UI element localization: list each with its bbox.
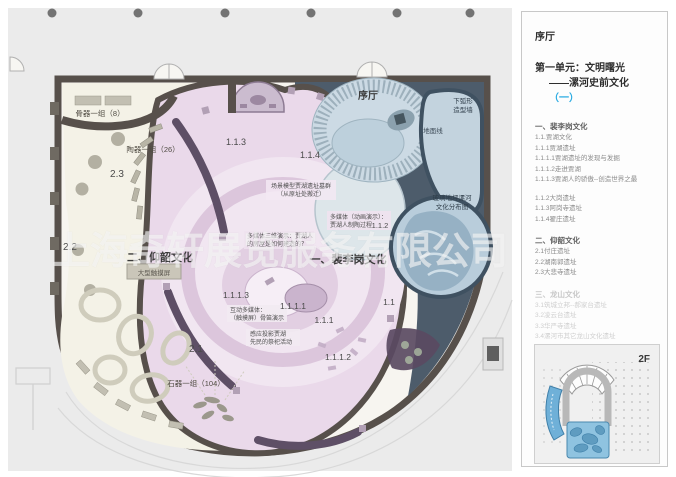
section-item: 3.4漯河市其它龙山文化遗址 xyxy=(535,332,657,343)
panel-unit-suffix: （一） xyxy=(549,93,579,104)
minimap-zone-bottom xyxy=(567,422,609,458)
section-item: 1.1.1.2走进贾湖 xyxy=(535,165,657,176)
interact-line1: 互动多媒体： xyxy=(230,306,266,314)
hall-label: 序厅 xyxy=(358,89,378,102)
legend-panel: 序厅 第一单元：文明曙光 ——漯河史前文化（一） 一、裴李岗文化 1.1.贾湖文… xyxy=(521,11,668,467)
section-item: 2.3大悲寺遗址 xyxy=(535,268,657,279)
zone-num-2-1: 2.1 xyxy=(189,344,203,355)
section-item: 3.1筑城立邦--郝家台遗址 xyxy=(535,301,657,312)
media-3d-line2: 的房屋是如何建造的？ xyxy=(247,240,307,248)
glass-floor-line2: 文化分布图 xyxy=(436,202,469,211)
zone-num-1-1-1: 1.1.1 xyxy=(315,315,334,325)
section-longshan: 三、龙山文化 3.1筑城立邦--郝家台遗址 3.2凌云台遗址 3.3华严寺遗址 … xyxy=(535,288,657,343)
section-heading: 一、裴李岗文化 xyxy=(535,120,657,133)
scene-model-line1: 场景模型贾湖遗址墓群 xyxy=(271,182,331,190)
pottery-group-label: 陶器一组（26） xyxy=(126,144,179,154)
panel-unit-title-line1: 第一单元：文明曙光 xyxy=(535,61,657,76)
projection-line2: 先民的祭祀活动 xyxy=(250,338,292,346)
zone-num-2-3: 2.3 xyxy=(110,169,124,180)
scene-model-line2: （从原址处搬迁） xyxy=(277,190,325,198)
zone-num-1-1-1-3: 1.1.1.3 xyxy=(223,290,249,300)
minimap-floor-label: 2F xyxy=(638,354,650,365)
panel-unit-subtitle: ——漯河史前文化 xyxy=(549,78,629,89)
elevator-block xyxy=(483,338,503,370)
zone-num-1-1-3: 1.1.3 xyxy=(226,137,246,147)
section-item: 1.1.3阿岗寺遗址 xyxy=(535,204,657,215)
section-heading: 二、仰韶文化 xyxy=(535,234,657,247)
floorplan-page: 骨器一组（8） 陶器一组（26） 石器一组（104） 大型触摸屏 二、仰韶文化 … xyxy=(0,0,676,477)
section-yangshao: 二、仰韶文化 2.1付庄遗址 2.2湖南郭遗址 2.3大悲寺遗址 xyxy=(535,234,657,279)
zone-title-peiligang: 一、裴李岗文化 xyxy=(310,252,387,266)
floorplan-drawing: 骨器一组（8） 陶器一组（26） 石器一组（104） 大型触摸屏 二、仰韶文化 … xyxy=(0,0,520,477)
arc-wall-line1: 下弧形 xyxy=(453,96,473,105)
projection-line1: 感应投影贾湖 xyxy=(250,330,286,338)
section-item: 3.2凌云台遗址 xyxy=(535,311,657,322)
section-item: 2.1付庄遗址 xyxy=(535,247,657,258)
section-item: 2.2湖南郭遗址 xyxy=(535,258,657,269)
section-item: 1.1.1.3贾湖人的骄傲--创造世界之最 xyxy=(535,175,657,186)
zone-num-1-1: 1.1 xyxy=(383,297,395,307)
section-item: 1.1.4翟庄遗址 xyxy=(535,215,657,226)
section-item: 1.1.贾湖文化 xyxy=(535,133,657,144)
section-item: 1.1.2大岗遗址 xyxy=(535,194,657,205)
panel-hall-label: 序厅 xyxy=(535,28,657,43)
zone-num-1-1-4: 1.1.4 xyxy=(300,150,320,160)
bone-group-label: 骨器一组（8） xyxy=(75,108,124,118)
media-anim-line1: 多媒体（动画演示）： xyxy=(330,213,387,221)
stone-group-label: 石器一组（104） xyxy=(167,378,225,388)
glass-floor-circle xyxy=(391,197,491,297)
media-anim-line2: 贾湖人制陶过程 xyxy=(330,221,372,229)
panel-unit-title-line2: ——漯河史前文化（一） xyxy=(535,76,657,106)
section-item: 1.1.1.1贾湖遗址的发现与发掘 xyxy=(535,154,657,165)
zone-num-1-1-1-1: 1.1.1.1 xyxy=(280,301,306,311)
touch-screen-label: 大型触摸屏 xyxy=(138,268,171,277)
zone-num-1-1-1-2: 1.1.1.2 xyxy=(325,352,351,362)
arc-wall-line2: 造型墙 xyxy=(453,105,473,114)
zone-num-2-2: 2.2 xyxy=(63,242,77,253)
ground-line-label: 地面线 xyxy=(423,126,443,135)
section-peiligang: 一、裴李岗文化 1.1.贾湖文化 1.1.1贾湖遗址 1.1.1.1贾湖遗址的发… xyxy=(535,120,657,225)
section-item: 3.3华严寺遗址 xyxy=(535,322,657,333)
section-heading: 三、龙山文化 xyxy=(535,288,657,301)
zone-title-yangshao: 二、仰韶文化 xyxy=(127,250,193,264)
section-item: 1.1.1贾湖遗址 xyxy=(535,144,657,155)
media-3d-line1: 多媒体三维演示：贾湖人 xyxy=(247,232,313,240)
key-plan-minimap: 2F xyxy=(534,344,660,464)
interact-line2: （触摸屏）骨笛演示 xyxy=(230,314,284,322)
glass-floor-line1: 玻璃地坪漯河 xyxy=(433,193,473,202)
zone-num-1-1-2: 1.1.2 xyxy=(372,221,389,230)
